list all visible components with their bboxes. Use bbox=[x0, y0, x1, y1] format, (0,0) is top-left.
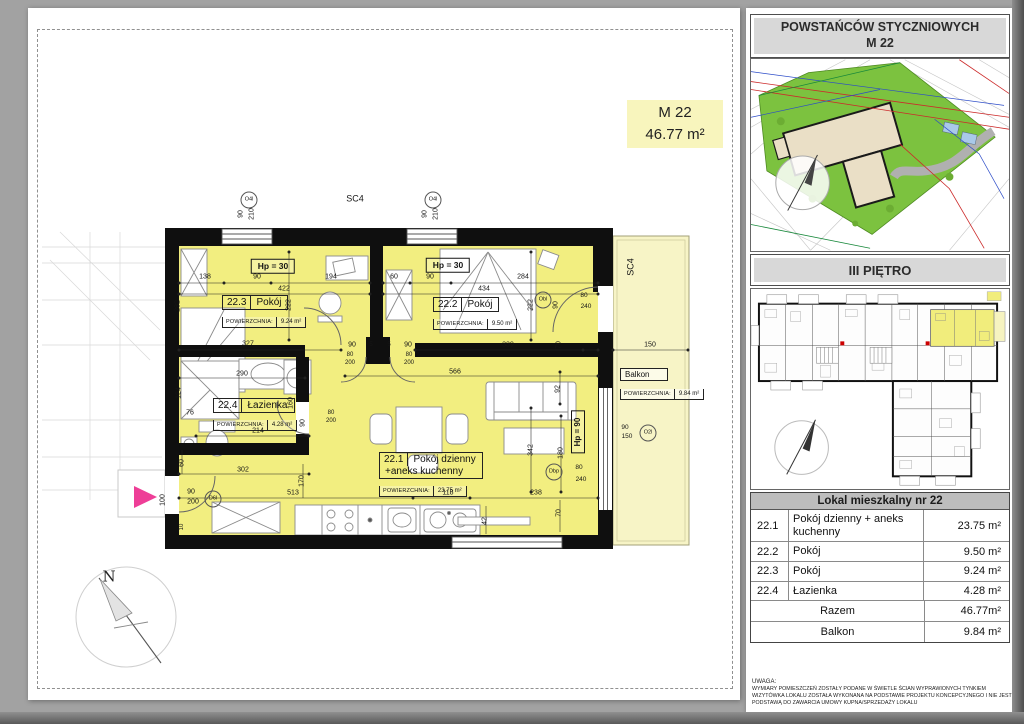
dimension-label: 80 bbox=[575, 465, 582, 472]
dimension-label: SC4 bbox=[627, 258, 636, 276]
dimension-label: 434 bbox=[478, 286, 490, 293]
dimension-label: 124 bbox=[176, 387, 183, 399]
table-cell: 23.75 m² bbox=[924, 510, 1009, 541]
dimension-label: 138 bbox=[199, 274, 211, 281]
dimension-label: 90 bbox=[621, 425, 628, 432]
room-id: 22.2 bbox=[434, 298, 462, 311]
table-cell: Balkon bbox=[751, 622, 924, 642]
site-plan-map bbox=[751, 59, 1009, 251]
dimension-label: 90 bbox=[238, 210, 245, 218]
dimension-label: Hp = 30 bbox=[426, 258, 470, 273]
dimension-label: 290 bbox=[236, 371, 248, 378]
dimension-label: 222 bbox=[286, 299, 293, 311]
area-label: POWIERZCHNIA: bbox=[434, 319, 487, 329]
north-label: N bbox=[102, 570, 115, 585]
dimension-label: 150 bbox=[644, 342, 656, 349]
floor-name: III PIĘTRO bbox=[849, 263, 912, 278]
table-cell: 46.77m² bbox=[924, 601, 1009, 621]
dimension-label: 339 bbox=[502, 342, 514, 349]
dimension-label: 200 bbox=[187, 499, 199, 506]
dimension-label: 150 bbox=[622, 434, 633, 441]
floor-header-panel: III PIĘTRO bbox=[750, 254, 1010, 286]
dimension-label: 222 bbox=[528, 299, 535, 311]
page-edge-shadow-bottom bbox=[0, 712, 1024, 724]
disclaimer-lines: WYMIARY POMIESZCZEŃ ZOSTAŁY PODANE W ŚWI… bbox=[752, 686, 1010, 707]
unit-table-row: 22.3Pokój9.24 m² bbox=[751, 562, 1009, 582]
dimension-label: 90 bbox=[253, 274, 261, 281]
dimension-label: 200 bbox=[345, 360, 355, 366]
unit-table-row: 22.2Pokój9.50 m² bbox=[751, 542, 1009, 562]
room-name: Balkon bbox=[621, 369, 667, 380]
room-label-22-3: 22.3 Pokój POWIERZCHNIA: 9.24 m² bbox=[222, 292, 306, 328]
dimension-label: 118 bbox=[442, 490, 453, 497]
unit-badge: M 22 46.77 m² bbox=[627, 100, 723, 148]
dimension-label: 80 bbox=[347, 352, 354, 358]
dimension-label: 90 bbox=[187, 489, 195, 496]
table-cell: Pokój bbox=[788, 562, 924, 581]
dimension-label: 5 bbox=[369, 342, 372, 348]
room-name: Łazienka bbox=[242, 399, 293, 412]
unit-number: M 22 bbox=[866, 36, 894, 52]
dimension-label: 284 bbox=[517, 274, 529, 281]
room-label-22-2: 22.2 Pokój POWIERZCHNIA: 9.50 m² bbox=[433, 294, 517, 330]
room-name: Pokój bbox=[251, 296, 287, 309]
opening-tag: O4l bbox=[241, 192, 258, 209]
room-label-main: 22.3 Pokój bbox=[222, 295, 288, 310]
dimension-label: 90 bbox=[404, 342, 412, 349]
room-label-main: 22.2 Pokój bbox=[433, 297, 499, 312]
site-plan-panel bbox=[750, 58, 1010, 252]
dimension-label: 10 bbox=[179, 524, 185, 531]
unit-area-table: Lokal mieszkalny nr 22 22.1Pokój dzienny… bbox=[750, 492, 1010, 643]
floor-plan-thumbnail bbox=[751, 289, 1009, 489]
dimension-label: 342 bbox=[528, 444, 535, 456]
room-area-row: POWIERZCHNIA: 9.84 m² bbox=[620, 389, 704, 400]
room-label-main: 22.1 Pokój dzienny +aneks kuchenny bbox=[379, 452, 483, 479]
dimension-label: Hp = 90 bbox=[571, 411, 585, 454]
dimension-label: 513 bbox=[287, 490, 299, 497]
table-cell: 9.24 m² bbox=[924, 562, 1009, 581]
table-cell: 22.4 bbox=[751, 582, 788, 601]
opening-tag: D6l bbox=[205, 491, 222, 508]
unit-table-row: 22.1Pokój dzienny + aneks kuchenny23.75 … bbox=[751, 510, 1009, 542]
dimension-label: Hp = 30 bbox=[251, 259, 295, 274]
dimension-label: 422 bbox=[278, 286, 290, 293]
dimension-label: 240 bbox=[576, 477, 587, 484]
drawing-sheet: M 22 46.77 m² 22.3 Pokój POWIERZCHNIA: 9… bbox=[0, 0, 1024, 724]
dimension-label: 60 bbox=[390, 274, 398, 281]
room-id: 22.3 bbox=[223, 296, 251, 309]
table-cell: 22.1 bbox=[751, 510, 788, 541]
unit-table-summary-row: Balkon9.84 m² bbox=[751, 622, 1009, 642]
dimension-label: 302 bbox=[237, 467, 249, 474]
table-cell: Łazienka bbox=[788, 582, 924, 601]
dimension-label: 282 bbox=[175, 300, 182, 312]
dimension-label: 90 bbox=[422, 210, 429, 218]
dimension-label: 90 bbox=[348, 342, 356, 349]
dimension-label: 5 bbox=[387, 342, 390, 348]
unit-table-summary-row: Razem46.77m² bbox=[751, 601, 1009, 622]
area-label: POWIERZCHNIA: bbox=[223, 317, 276, 327]
street-header-panel: POWSTAŃCÓW STYCZNIOWYCH M 22 bbox=[750, 14, 1010, 58]
table-cell: 22.2 bbox=[751, 542, 788, 561]
area-label: POWIERZCHNIA: bbox=[621, 389, 674, 399]
dimension-label: 210 bbox=[249, 208, 256, 220]
dimension-label: 170 bbox=[299, 475, 306, 487]
disclaimer-title: UWAGA: bbox=[752, 679, 1010, 685]
table-cell: Pokój dzienny + aneks kuchenny bbox=[788, 510, 924, 541]
highlighted-unit bbox=[931, 310, 1005, 347]
main-compass bbox=[76, 567, 176, 667]
dimension-label: 200 bbox=[404, 360, 414, 366]
table-cell: 9.84 m² bbox=[924, 622, 1009, 642]
dimension-label: 194 bbox=[325, 274, 337, 281]
street-name: POWSTAŃCÓW STYCZNIOWYCH bbox=[781, 20, 979, 36]
table-summary: Razem46.77m²Balkon9.84 m² bbox=[751, 601, 1009, 642]
opening-tag: O2l bbox=[640, 425, 657, 442]
opening-tag: Dbp bbox=[546, 464, 563, 481]
disclaimer: UWAGA: WYMIARY POMIESZCZEŃ ZOSTAŁY PODAN… bbox=[752, 679, 1010, 707]
opening-tag: Obl bbox=[535, 292, 552, 309]
room-label-main: Balkon bbox=[620, 368, 668, 381]
table-cell: 9.50 m² bbox=[924, 542, 1009, 561]
room-label-22-1: 22.1 Pokój dzienny +aneks kuchenny POWIE… bbox=[379, 452, 483, 497]
area-value: 9.84 m² bbox=[674, 389, 703, 399]
table-cell: Pokój bbox=[788, 542, 924, 561]
dimension-label: 238 bbox=[530, 490, 542, 497]
site-compass bbox=[776, 155, 830, 211]
dimension-label: 70 bbox=[556, 341, 563, 349]
area-label: POWIERZCHNIA: bbox=[380, 486, 433, 496]
table-title: Lokal mieszkalny nr 22 bbox=[751, 493, 1009, 510]
room-label-main: 22.4 Łazienka bbox=[213, 398, 295, 413]
area-value: 9.50 m² bbox=[487, 319, 516, 329]
dimension-label: 60 bbox=[179, 459, 186, 467]
dimension-label: 90 bbox=[553, 301, 560, 309]
table-cell: Razem bbox=[751, 601, 924, 621]
dimension-label: 80 bbox=[328, 410, 335, 416]
area-value: 9.24 m² bbox=[276, 317, 305, 327]
dimension-label: 327 bbox=[242, 341, 254, 348]
unit-badge-title: M 22 bbox=[658, 102, 691, 124]
area-value: 4.28 m² bbox=[267, 420, 296, 430]
opening-tag: O4l bbox=[425, 192, 442, 209]
dimension-label: 160 bbox=[288, 397, 295, 409]
room-name: Pokój bbox=[462, 298, 498, 311]
room-id: 22.4 bbox=[214, 399, 242, 412]
room-area-row: POWIERZCHNIA: 9.50 m² bbox=[433, 319, 517, 330]
room-label-22-4: 22.4 Łazienka POWIERZCHNIA: 4.28 m² bbox=[213, 395, 297, 431]
room-id: 22.1 bbox=[380, 453, 408, 466]
disclaimer-line: PODSTAWĄ DO ZAWARCIA UMOWY KUPNA/SPRZEDA… bbox=[752, 700, 1010, 707]
room-area-row: POWIERZCHNIA: 9.24 m² bbox=[222, 317, 306, 328]
dimension-label: SC4 bbox=[346, 195, 364, 204]
unit-badge-area: 46.77 m² bbox=[645, 124, 704, 146]
dimension-label: 90 bbox=[300, 419, 307, 427]
dimension-label: 80 bbox=[406, 352, 413, 358]
dimension-label: 42 bbox=[482, 517, 489, 525]
room-name-line2: +aneks kuchenny bbox=[380, 466, 482, 478]
dimension-label: 70 bbox=[556, 509, 563, 517]
construction-lines bbox=[42, 232, 165, 500]
table-rows: 22.1Pokój dzienny + aneks kuchenny23.75 … bbox=[751, 510, 1009, 601]
dimension-label: 240 bbox=[581, 304, 592, 311]
table-cell: 22.3 bbox=[751, 562, 788, 581]
dimension-label: 180 bbox=[558, 447, 565, 459]
page-edge-shadow-right bbox=[1012, 0, 1024, 724]
mini-unit-tag bbox=[987, 292, 1001, 301]
unit-table-row: 22.4Łazienka4.28 m² bbox=[751, 582, 1009, 602]
balcony-label: Balkon POWIERZCHNIA: 9.84 m² bbox=[620, 364, 704, 400]
dimension-label: 200 bbox=[326, 418, 336, 424]
floor-plan-thumbnail-panel bbox=[750, 288, 1010, 490]
dimension-label: 210 bbox=[433, 208, 440, 220]
table-cell: 4.28 m² bbox=[924, 582, 1009, 601]
dimension-label: 92 bbox=[555, 385, 562, 393]
room-name: Pokój dzienny bbox=[408, 453, 481, 466]
dimension-label: 90 bbox=[426, 274, 434, 281]
dimension-label: 214 bbox=[252, 428, 264, 435]
room-label-row: 22.1 Pokój dzienny bbox=[380, 453, 482, 466]
dimension-label: 80 bbox=[580, 293, 587, 300]
dimension-label: 566 bbox=[449, 369, 461, 376]
dimension-label: 100 bbox=[160, 494, 167, 506]
dimension-label: 76 bbox=[186, 410, 194, 417]
